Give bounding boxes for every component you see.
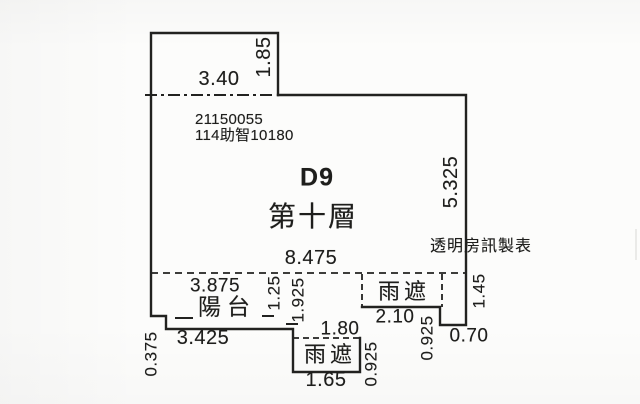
dim-balcony-to-canopy-height: 1.925	[290, 277, 307, 322]
dim-canopy-bottom-width: 1.65	[306, 370, 347, 390]
dim-right-step-width: 0.70	[450, 327, 489, 346]
dim-balcony-bottom-width: 3.425	[177, 328, 230, 348]
dim-canopy-right-width: 2.10	[376, 308, 415, 327]
dim-canopy-right-height: 0.925	[419, 315, 436, 360]
dim-balcony-right-height: 1.25	[266, 275, 283, 310]
balcony-label: 陽台	[198, 296, 256, 319]
dim-canopy-bottom-top-width: 1.80	[321, 320, 360, 339]
floor-plan-canvas: 3.40 1.85 21150055 114助智10180 D9 第十層 5.3…	[0, 0, 640, 404]
dim-top-width: 3.40	[199, 69, 240, 89]
dim-top-height: 1.85	[254, 37, 274, 78]
registration-number-line2: 114助智10180	[195, 128, 294, 143]
canopy-bottom-label: 雨遮	[304, 344, 356, 366]
dim-main-width: 8.475	[285, 248, 338, 268]
floor-label: 第十層	[268, 203, 358, 231]
canopy-right-label: 雨遮	[378, 281, 430, 303]
dim-canopy-bottom-height: 0.925	[363, 341, 380, 386]
dim-right-height: 5.325	[441, 156, 461, 209]
dim-balcony-left-offset: 0.375	[143, 331, 160, 376]
registration-number-line1: 21150055	[195, 112, 263, 127]
credit-watermark: 透明房訊製表	[430, 239, 532, 255]
dim-right-lower-height: 1.45	[471, 273, 488, 308]
unit-id-label: D9	[300, 166, 334, 191]
